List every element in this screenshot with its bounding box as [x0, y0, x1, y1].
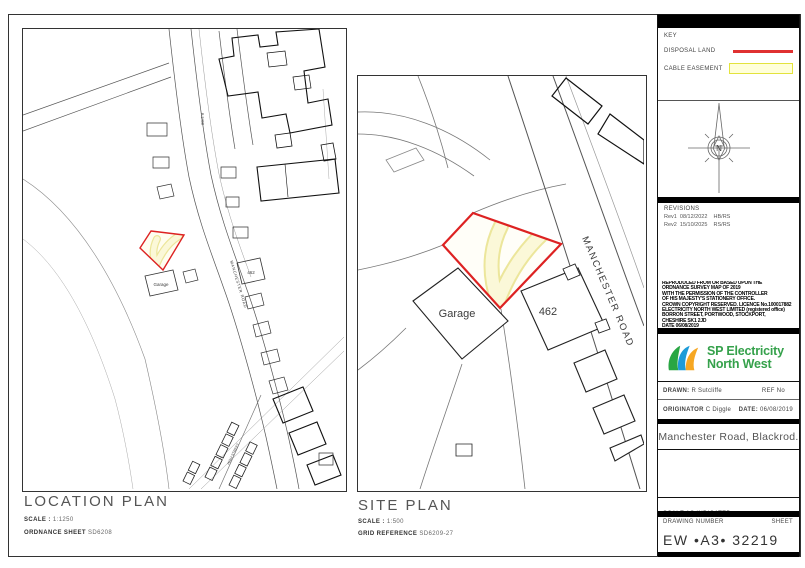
company-name-line2: North West: [707, 358, 784, 371]
location-plan-ordnance: ORDNANCE SHEET SD6208: [24, 530, 112, 536]
location-house-462-label: 462: [247, 270, 255, 275]
disposal-land-label: DISPOSAL LAND: [664, 48, 715, 54]
cable-easement-swatch: [729, 63, 793, 74]
ref-no-label: REF No: [762, 388, 785, 394]
date-value: 06/08/2019: [760, 407, 793, 413]
revisions-title: REVISIONS: [664, 206, 793, 212]
site-grid-label: GRID REFERENCE: [358, 531, 417, 537]
company-name: SP Electricity North West: [707, 345, 784, 371]
location-garage-label: Garage: [153, 282, 169, 287]
location-plan-svg: Garage 462 MANCHESTER ROAD B 5408 HIGH S…: [23, 29, 344, 489]
location-ordnance-label: ORDNANCE SHEET: [24, 530, 86, 536]
drawing-number-labels: DRAWING NUMBER SHEET: [658, 517, 799, 529]
company-name-line1: SP Electricity: [707, 345, 784, 358]
site-house-462-label: 462: [539, 306, 557, 318]
date-label: DATE:: [739, 407, 758, 413]
originator-value: C Diggle: [706, 407, 731, 413]
project-title-box: Manchester Road, Blackrod.: [658, 424, 799, 450]
north-compass-icon: N: [684, 101, 754, 195]
site-scale-value: 1:500: [387, 519, 404, 525]
revisions-section: REVISIONS Rev1 08/12/2022 HB/RS Rev2 15/…: [658, 203, 799, 245]
titleblock-bottom-bar: [658, 552, 799, 557]
company-logo: SP Electricity North West: [658, 334, 799, 382]
location-plan-scale: SCALE : 1:1250: [24, 517, 74, 523]
location-buildings-bold: [219, 29, 341, 485]
site-garage-label: Garage: [439, 308, 476, 320]
copyright-note: REPRODUCED FROM OR BASED UPON THE ORDNAN…: [658, 281, 799, 328]
location-roads: [23, 29, 344, 489]
site-buildings-far: [552, 78, 644, 164]
title-block: KEY DISPOSAL LAND CABLE EASEMENT: [657, 14, 800, 556]
location-scale-label: SCALE :: [24, 517, 51, 523]
drawing-number: EW •A3• 32219: [663, 532, 779, 548]
site-plan-grid-ref: GRID REFERENCE SD6209-27: [358, 531, 453, 537]
revision-row-1: Rev1 08/12/2022 HB/RS: [664, 214, 793, 220]
site-scale-label: SCALE :: [358, 519, 385, 525]
drawn-value: R Sutcliffe: [691, 388, 722, 394]
key-section: KEY DISPOSAL LAND CABLE EASEMENT: [658, 28, 799, 101]
location-ordnance-value: SD6208: [88, 530, 112, 536]
drawing-number-label: DRAWING NUMBER: [663, 519, 724, 529]
site-plan-scale: SCALE : 1:500: [358, 519, 404, 525]
cable-easement-label: CABLE EASEMENT: [664, 66, 723, 72]
originator-label: ORIGINATOR: [663, 407, 704, 413]
enw-leaves-icon: [667, 343, 701, 373]
originator-row: ORIGINATOR C Diggle DATE: 06/08/2019: [658, 400, 799, 419]
site-plan-title: SITE PLAN: [358, 497, 453, 514]
revision-row-2: Rev2 15/10/2025 RS/RS: [664, 222, 793, 228]
location-scale-value: 1:1250: [53, 517, 74, 523]
sheet-label: SHEET: [771, 519, 793, 529]
location-terrace-rows: [183, 422, 257, 488]
site-grid-value: SD6209-27: [419, 531, 453, 537]
drawing-sheet: Garage 462 MANCHESTER ROAD B 5408 HIGH S…: [0, 0, 805, 568]
key-title: KEY: [664, 33, 793, 39]
drawing-number-value-row: EW •A3• 32219: [658, 529, 799, 552]
site-plan-svg: Garage 462 MANCHESTER ROAD: [358, 76, 644, 489]
location-road-number-label: B 5408: [200, 113, 204, 125]
disposal-land-swatch: [733, 50, 793, 53]
location-plan-map: Garage 462 MANCHESTER ROAD B 5408 HIGH S…: [22, 28, 347, 492]
drawn-label: DRAWN:: [663, 388, 689, 394]
location-plan-title: LOCATION PLAN: [24, 493, 169, 510]
titleblock-top-bar: [658, 15, 799, 28]
scale-note-row: SCALE AS INDICATED: [658, 497, 799, 511]
drawn-row: DRAWN: R Sutcliffe REF No: [658, 382, 799, 400]
compass-section: N: [658, 101, 799, 197]
project-title: Manchester Road, Blackrod.: [658, 431, 798, 443]
compass-north-label: N: [716, 144, 722, 153]
site-plan-map: Garage 462 MANCHESTER ROAD: [357, 75, 647, 492]
